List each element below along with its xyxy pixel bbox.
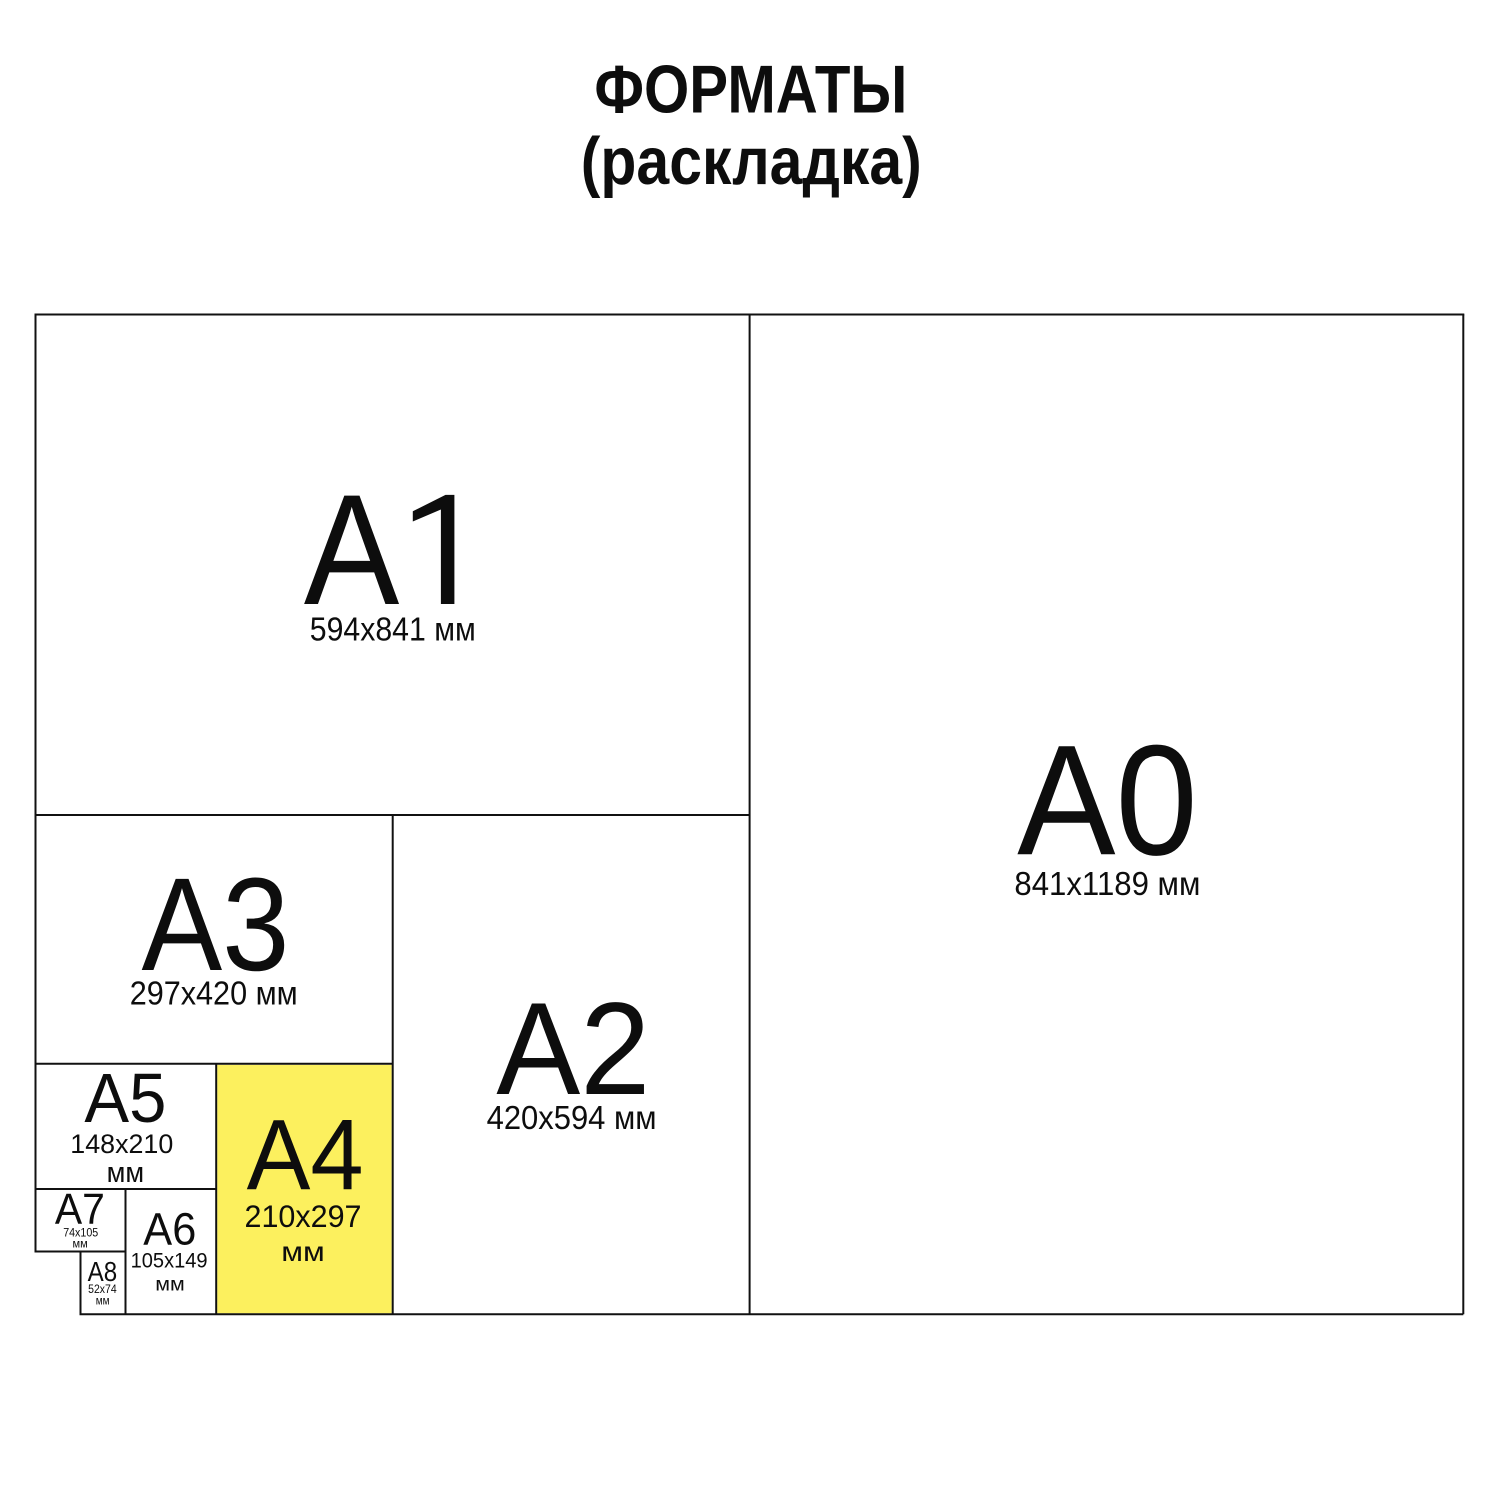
- svg-text:ФОРМАТЫ: ФОРМАТЫ: [594, 53, 907, 128]
- svg-text:мм: мм: [281, 1236, 325, 1267]
- svg-text:52х74: 52х74: [88, 1283, 117, 1296]
- svg-text:148х210: 148х210: [70, 1129, 173, 1159]
- svg-text:мм: мм: [73, 1239, 88, 1251]
- svg-text:мм: мм: [96, 1295, 110, 1307]
- svg-text:А4: А4: [247, 1099, 364, 1211]
- svg-text:420х594 мм: 420х594 мм: [487, 1100, 657, 1137]
- svg-text:74х105: 74х105: [63, 1225, 98, 1239]
- svg-text:А0: А0: [1017, 713, 1198, 888]
- svg-text:(раскладка): (раскладка): [581, 125, 922, 199]
- svg-text:594х841 мм: 594х841 мм: [310, 612, 476, 649]
- svg-text:мм: мм: [155, 1274, 185, 1296]
- svg-text:841х1189 мм: 841х1189 мм: [1014, 866, 1200, 903]
- svg-text:210х297: 210х297: [245, 1198, 362, 1234]
- svg-text:А6: А6: [143, 1204, 196, 1255]
- svg-text:105х149: 105х149: [131, 1249, 208, 1273]
- svg-text:мм: мм: [107, 1157, 145, 1189]
- svg-text:297х420 мм: 297х420 мм: [130, 976, 298, 1013]
- svg-text:А5: А5: [84, 1059, 166, 1137]
